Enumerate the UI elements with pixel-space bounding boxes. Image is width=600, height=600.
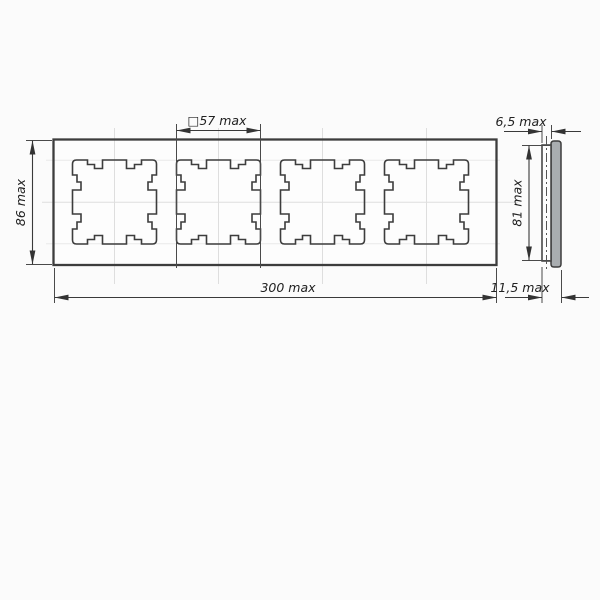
dimension-front-depth: 6,5 max (495, 114, 581, 143)
dimension-label-inner-height: 81 max (510, 179, 525, 227)
front-view (42, 128, 518, 284)
drawing-canvas: □57 max 86 max 300 max 6,5 max 81 max 11… (0, 0, 600, 600)
dimension-label-width: 300 max (260, 280, 316, 295)
dimension-overall-width: 300 max (55, 268, 497, 303)
side-view (542, 136, 561, 269)
dimension-label-total-depth: 11,5 max (490, 280, 550, 295)
dimension-label-height: 86 max (13, 178, 28, 226)
dimension-label-front-depth: 6,5 max (495, 114, 547, 129)
side-view-front-plate (551, 141, 561, 267)
technical-drawing: □57 max 86 max 300 max 6,5 max 81 max 11… (0, 0, 600, 600)
dimension-label-opening: □57 max (188, 113, 248, 128)
dimension-total-depth: 11,5 max (490, 267, 589, 303)
